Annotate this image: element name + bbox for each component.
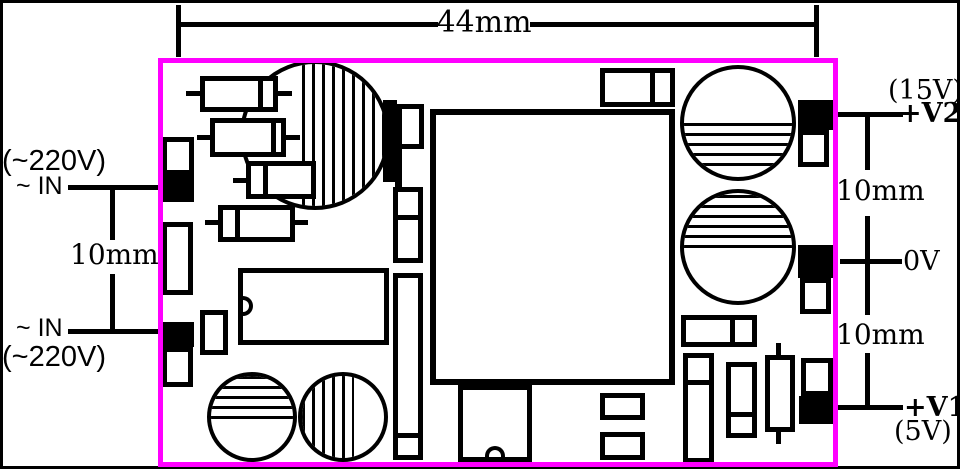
- tall-component-divider: [688, 380, 709, 385]
- v2-pad-black: [798, 100, 834, 130]
- output-capacitor-v2: [680, 65, 796, 181]
- diode2-lead-right: [286, 135, 300, 140]
- diode1-lead-left: [186, 91, 200, 96]
- input-bottom-pin-label: ~ IN: [16, 316, 63, 341]
- diode4-lead-left: [205, 220, 218, 225]
- axial-component: [765, 355, 795, 432]
- bridge-diode-1: [200, 76, 278, 112]
- link-trace: [395, 149, 402, 189]
- ic-chip: [238, 268, 389, 345]
- v2-pad-white: [798, 130, 829, 167]
- input-top-pin-label: ~ IN: [16, 174, 63, 199]
- zero-pad-black: [798, 245, 834, 278]
- output-capacitor-0v: [680, 189, 796, 305]
- dimension-tick-right: [814, 5, 819, 57]
- top-resistor-band: [650, 73, 655, 102]
- input-pitch-line-upper: [110, 185, 115, 240]
- bridge-diode-3: [246, 161, 316, 199]
- small-capacitor-2-hatch: [302, 376, 354, 458]
- small-capacitor-1-hatch: [211, 376, 293, 422]
- bridge-diode-4: [218, 205, 295, 242]
- zero-pad-white: [800, 278, 831, 314]
- right-pitch-line-1a: [865, 114, 870, 170]
- right-pitch-label-1: 10mm: [836, 177, 925, 205]
- column-lower-divider: [398, 433, 418, 438]
- transformer: [430, 109, 675, 385]
- bottom-right-mid-component: [726, 362, 757, 438]
- axial-lead-bottom: [776, 432, 781, 444]
- pcb-layout-diagram: 44mm (~220V) ~ IN 10mm ~ IN (~220V) (15V…: [0, 0, 960, 469]
- input-bottom-wire: [68, 329, 163, 334]
- column-upper-divider: [398, 215, 418, 220]
- dimension-tick-left: [176, 5, 181, 57]
- bottom-right-tall-component: [683, 353, 714, 463]
- dimension-line-right-segment: [530, 22, 816, 27]
- bottom-right-resistor: [681, 315, 757, 347]
- input-pad-bottom-black: [162, 322, 194, 347]
- small-capacitor-1: [207, 372, 297, 462]
- dimension-line-left-segment: [178, 22, 438, 27]
- zero-volt-label: 0V: [903, 248, 940, 275]
- component-column-upper: [393, 187, 423, 263]
- v1-pad-black: [799, 396, 834, 424]
- diode4-lead-right: [295, 220, 308, 225]
- input-bottom-voltage-label: (~220V): [2, 343, 106, 372]
- diode2-band: [271, 123, 276, 152]
- ic-side-component: [200, 310, 228, 355]
- small-capacitor-2: [298, 372, 388, 462]
- diode3-lead-left: [233, 178, 246, 183]
- diode3-band: [263, 166, 268, 194]
- left-pad-bottom-white: [162, 347, 193, 387]
- bottom-pad-upper: [600, 393, 645, 420]
- link-pad-white: [397, 104, 424, 149]
- zero-volt-wire: [840, 259, 902, 264]
- output-capacitor-v2-hatch: [684, 123, 792, 173]
- mid-component-divider: [731, 412, 752, 417]
- v2-pin-label: +V2: [899, 100, 960, 127]
- v1-pad-white: [801, 358, 833, 396]
- axial-lead-top: [776, 343, 781, 355]
- input-top-wire: [68, 185, 163, 190]
- right-pitch-line-2: [865, 353, 870, 410]
- v1-wire: [833, 405, 903, 410]
- right-pitch-line-1b: [865, 216, 870, 315]
- input-pad-top-black: [162, 174, 194, 202]
- bridge-diode-2: [210, 118, 286, 157]
- board-width-label: 44mm: [436, 8, 532, 38]
- v1-voltage-label: (5V): [894, 418, 952, 445]
- diode1-lead-right: [278, 91, 292, 96]
- diode4-band: [235, 210, 240, 237]
- output-capacitor-0v-hatch: [684, 195, 792, 249]
- diode1-band: [258, 81, 263, 107]
- input-pad-top-white: [162, 137, 194, 175]
- left-pad-middle: [162, 222, 193, 295]
- top-resistor: [600, 68, 675, 107]
- bottom-pad-lower: [600, 432, 645, 460]
- bottom-right-resistor-band: [730, 320, 735, 342]
- component-column-lower: [393, 273, 423, 460]
- right-pitch-label-2: 10mm: [836, 321, 925, 349]
- diode2-lead-left: [197, 135, 210, 140]
- input-pitch-line-lower: [110, 274, 115, 334]
- input-pitch-label: 10mm: [70, 241, 159, 269]
